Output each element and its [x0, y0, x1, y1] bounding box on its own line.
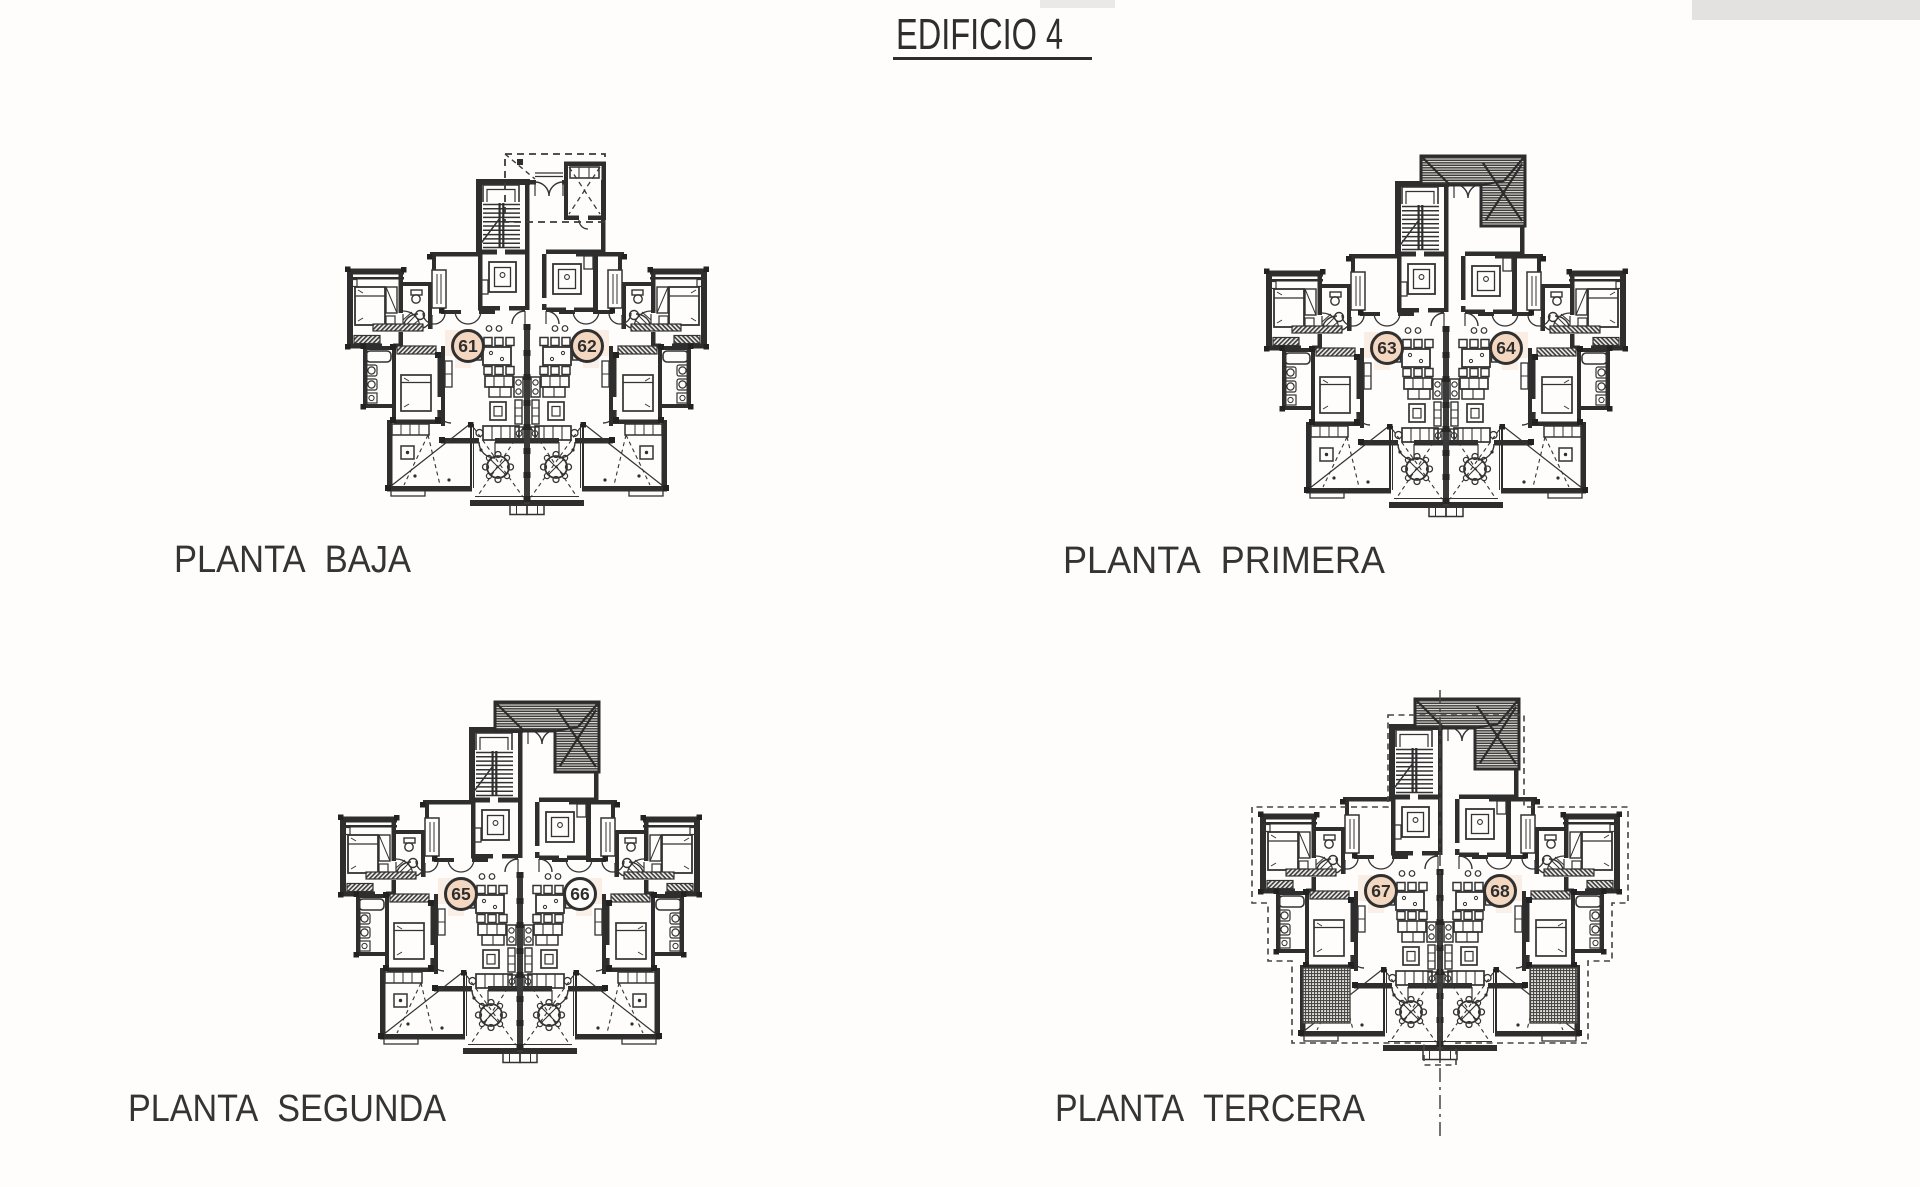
svg-text:66: 66	[570, 884, 590, 904]
svg-text:EDIFICIO: EDIFICIO	[896, 10, 1037, 59]
svg-text:PLANTA SEGUNDA: PLANTA SEGUNDA	[128, 1088, 447, 1130]
svg-text:PLANTA TERCERA: PLANTA TERCERA	[1055, 1088, 1366, 1130]
svg-text:62: 62	[577, 336, 597, 356]
svg-text:4: 4	[1046, 10, 1063, 59]
svg-text:65: 65	[451, 884, 471, 904]
svg-text:PLANTA BAJA: PLANTA BAJA	[174, 539, 412, 581]
svg-text:61: 61	[458, 336, 478, 356]
svg-text:63: 63	[1377, 338, 1397, 358]
svg-text:68: 68	[1490, 881, 1510, 901]
svg-text:67: 67	[1371, 881, 1390, 901]
svg-text:64: 64	[1496, 338, 1516, 358]
svg-text:PLANTA PRIMERA: PLANTA PRIMERA	[1063, 540, 1386, 582]
